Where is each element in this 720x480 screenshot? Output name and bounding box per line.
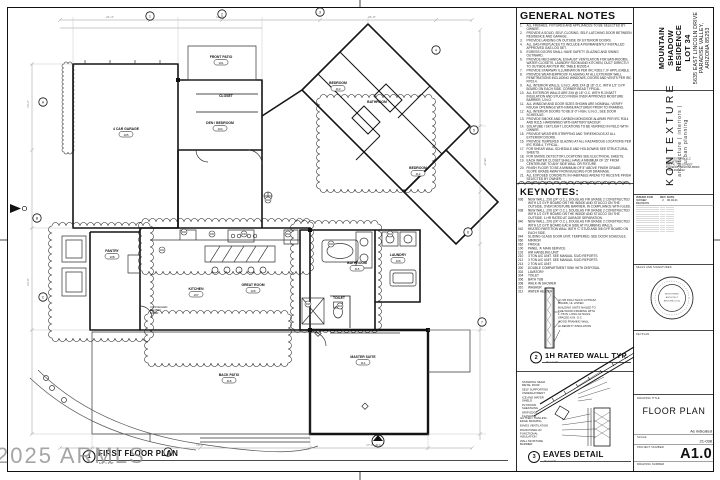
keynote-ref-label: 308 [306, 303, 311, 306]
project-name-line: MOUNTAIN SHADOW [658, 10, 675, 86]
room-label: BACK PATIO [219, 373, 240, 377]
room-tag-number: 118 [227, 379, 232, 383]
grid-bubble-label: 4 [435, 48, 437, 52]
drawing-number-label: DRAWING NUMBER [637, 463, 693, 469]
dimension-lines [30, 17, 486, 450]
gn-item: 2.PROVIDE A SOLID, SELF-CLOSING, SELF-LA… [520, 32, 632, 39]
keynote-ref-label: 062 [286, 233, 291, 236]
dimension-label: 17'-8" [366, 443, 374, 447]
keynote-ref-label: 040 [242, 233, 247, 236]
gn-item: 11.ALL WINDOW AND DOOR SIZES SHOWN ARE N… [520, 103, 632, 110]
room-label: BATHROOM [347, 261, 367, 265]
general-notes-panel: 1.ALL FINISHES, FIXTURES AND APPLIANCES … [520, 24, 632, 184]
room-label: BATHROOM [367, 100, 387, 104]
room-label: LAUNDRY [390, 253, 407, 257]
plan-fixtures [30, 46, 470, 452]
gn-item: 9.ALL INTERIOR WALLS, U.N.O., ARE 2X4 @ … [520, 84, 632, 91]
kn-item: 036NEW WALL, 2X6 (24" O.C.), DOUGLAS FIR… [518, 198, 632, 209]
grid-bubble-label: 1 [149, 14, 151, 18]
project-name-line: LOT 34 [684, 10, 693, 86]
rated-wall-scale: 3" = 1'-0" [546, 361, 586, 367]
keynote-ref-label: 304 [338, 305, 343, 308]
room-tag-number: 109 [395, 259, 400, 263]
keynote-ref-label: 306 [329, 243, 334, 246]
drawing-sheet: 4 CAR GARAGE105FRONT PATIO101CLOSETDEN /… [0, 0, 720, 480]
plan-walls [73, 24, 498, 434]
dimension-label: 16'-2" [26, 100, 30, 108]
rated-wall-callouts: (2) 5/8 INCH THICK GYPSUM BOARD, UL LIST… [558, 299, 596, 360]
callout-item: EAVES VENTILATION [520, 425, 550, 428]
eaves-title: EAVES DETAIL [543, 450, 604, 459]
callout-item: BUILDING UNITS NAILED TO THE WOOD FRAMIN… [558, 307, 596, 320]
dimension-label: 31'-6" [368, 15, 376, 19]
seals-label: SEALS AND SIGNATURES [636, 266, 696, 272]
gn-item: 4.ALL GAS FIREPLACES TO INCLUDE A PERMAN… [520, 43, 632, 50]
room-label: KITCHEN [188, 287, 204, 291]
eaves-callouts-bottom: GUTTER / TRAILING EDGE FRAMINGEAVES VENT… [520, 417, 550, 478]
firm-info-line: P 602.462.1122 [666, 170, 712, 173]
room-label: FRONT PATIO [210, 55, 233, 59]
gn-item: 10.ALL EXTERIOR WALLS ARE 2X6 @ 16" O.C.… [520, 92, 632, 103]
issue-table-empty-row [636, 230, 714, 232]
gn-item: 6.PROVIDE MECHANICAL EXHAUST VENTILATION… [520, 58, 632, 69]
rated-wall-number: 2 [533, 355, 539, 361]
callout-item: WOOD FRAMING WALL [558, 321, 596, 324]
seal-text-line: ARCHITECT [666, 296, 679, 299]
gn-item: 17.FOR SHEAR WALL SCHEDULE AND HOLDOWNS … [520, 148, 632, 155]
keynotes-title: KEYNOTES: [520, 187, 579, 198]
room-tag-number: 101 [218, 61, 223, 65]
gn-item: 13.PROVIDE SMOKE AND CARBON MONOXIDE ALA… [520, 118, 632, 125]
pantry-door-annotation: CONCEALED PANTRY DOOR [150, 306, 180, 324]
room-label: GREAT ROOM [241, 283, 264, 287]
project-address-line: PARADISE VALLEY, ARIZONA 85253 [700, 10, 712, 86]
watermark: 2025 ARMLS [0, 443, 146, 469]
drawing-title: FLOOR PLAN [634, 406, 714, 416]
keynote-ref-label: 310 [388, 233, 393, 236]
room-tag-number: 110 [336, 87, 341, 91]
keynote-ref-label: 300 [182, 231, 187, 234]
callout-item: RIGID PANEL W/ FUNCTIONAL INSULATION [520, 429, 550, 439]
callout-item: PLYWOOD SHEATHING [522, 404, 550, 410]
drawing-title-label: DRAWING TITLE [637, 397, 697, 403]
room-tag-number: 112 [416, 172, 421, 176]
kn-item: 312WATER HEATER [518, 290, 632, 294]
dimension-label: 24'-0" [26, 278, 30, 286]
room-label: 4 CAR GARAGE [113, 127, 140, 131]
callout-item: GUTTER / TRAILING EDGE FRAMING [520, 417, 550, 423]
keyplan-label: KEYPLAN [636, 333, 696, 339]
callout-item: ICE AND WATER SHIELD [522, 396, 550, 402]
room-label: CLOSET [219, 94, 234, 98]
gn-item: 15.PROVIDE WEATHER-STRIPPING AND THRESHO… [520, 133, 632, 140]
gn-item: 21.ALL EXPOSED CONCRETE IN HABITABLE ARE… [520, 174, 632, 181]
gn-item: 14.SOLATUBE / SKYLIGHT LOCATIONS TO BE V… [520, 125, 632, 132]
grid-bubble-label: 7 [481, 320, 483, 324]
room-label: BEDROOM [409, 166, 427, 170]
grid-bubble-label: 3 [319, 10, 321, 14]
room-tag-number: 105 [123, 133, 128, 137]
kn-item: 038NEW WALL, 2X6 (24" O.C.), DOUGLAS FIR… [518, 209, 632, 220]
callout-item: HI-DENSITY INSULATION [558, 325, 596, 328]
gn-item: 22.FINISH FLOOR IN THE GARAGE TO BE SEAL… [520, 182, 632, 185]
keynotes-panel: 036NEW WALL, 2X6 (24" O.C.), DOUGLAS FIR… [518, 198, 632, 298]
room-tag-number: 104 [217, 127, 222, 131]
kn-item: 042HEATED PARTITION WALL WITH 'C' STUD A… [518, 228, 632, 235]
issue-table: ISSUED FOR REV DATE OWNER REVISION 2 06.… [636, 196, 714, 268]
gn-item: 16.PROVIDE TEMPERED GLAZING AT ALL HAZAR… [520, 140, 632, 147]
room-label: MASTER SUITE [350, 355, 376, 359]
gn-item: 1.ALL FINISHES, FIXTURES AND APPLIANCES … [520, 24, 632, 31]
gn-item: 20.FINISH FLOOR TO BE A MINIMUM OF 8" AB… [520, 167, 632, 174]
callout-item: SELF SUPPORTING UNDERLAYMENT [522, 389, 550, 395]
sheet-number: A1.0 [660, 446, 712, 462]
room-tag-number: 107 [193, 293, 198, 297]
callout-item: WALL MOISTURE BARRIER [520, 440, 550, 446]
callout-item: (2) 5/8 INCH THICK GYPSUM BOARD, UL LIST… [558, 299, 596, 305]
room-label: PANTRY [105, 249, 119, 253]
dimension-label: 18'-4" [196, 443, 204, 447]
revision-cloud [291, 221, 382, 333]
seal-text-line: ARIZONA U.S.A. [664, 299, 681, 302]
dimension-label: 21'-4" [106, 15, 114, 19]
keynote-ref-label: 036 [210, 233, 215, 236]
room-tag-number: 114 [361, 361, 366, 365]
keynote-ref-label: 100 [160, 249, 165, 252]
eaves-scale: 3" = 1'-0" [544, 460, 584, 466]
dimension-label: 12'-8" [216, 15, 224, 19]
gn-item: 19.EACH WATER CLOSET SHALL HAVE A MINIMU… [520, 159, 632, 166]
revision-cloud [62, 62, 74, 154]
room-label: BEDROOM [329, 81, 347, 85]
grid-bubble-label: 5 [473, 128, 475, 132]
callout-item: STANDING SEAM METAL ROOF [522, 381, 550, 387]
revision-cloud [139, 219, 314, 275]
room-tag-number: 106 [250, 289, 255, 293]
revision-cloud [49, 223, 154, 342]
gn-item: 5.EGRESS DOORS SHALL HAVE SAFETY GLAZING… [520, 50, 632, 57]
gn-item: 8.PROVIDE WEATHERPROOF FLASHING AT ALL E… [520, 73, 632, 84]
room-label: TOILET [333, 296, 346, 300]
section-marker-label: A7.1 [375, 443, 381, 447]
firm-info: KONTEXTURE, LLCARCHITECT1817 N. 7TH STRE… [666, 158, 712, 187]
room-label: DEN / BEDROOM [206, 121, 234, 125]
kn-item: 040NEW WALL, 2X6 (24" O.C.), DOUGLAS FIR… [518, 220, 632, 227]
view-marker-icon [22, 206, 26, 210]
gn-item: 12.ALL INTERIOR DOORS TO BE 8'-0" HIGH, … [520, 110, 632, 117]
room-tag-number: 108 [109, 255, 114, 259]
keynote-ref-label: 042 [266, 199, 271, 202]
seal-text-line: REGISTERED [665, 294, 680, 296]
dimension-label: 28'-8" [483, 158, 487, 166]
grid-bubble-label: 6 [467, 230, 469, 234]
room-tag-number: 115 [355, 267, 360, 271]
project-name-block: MOUNTAIN SHADOW RESIDENCE LOT 34 5635 EA… [658, 10, 711, 86]
general-notes-title: GENERAL NOTES [520, 10, 632, 24]
